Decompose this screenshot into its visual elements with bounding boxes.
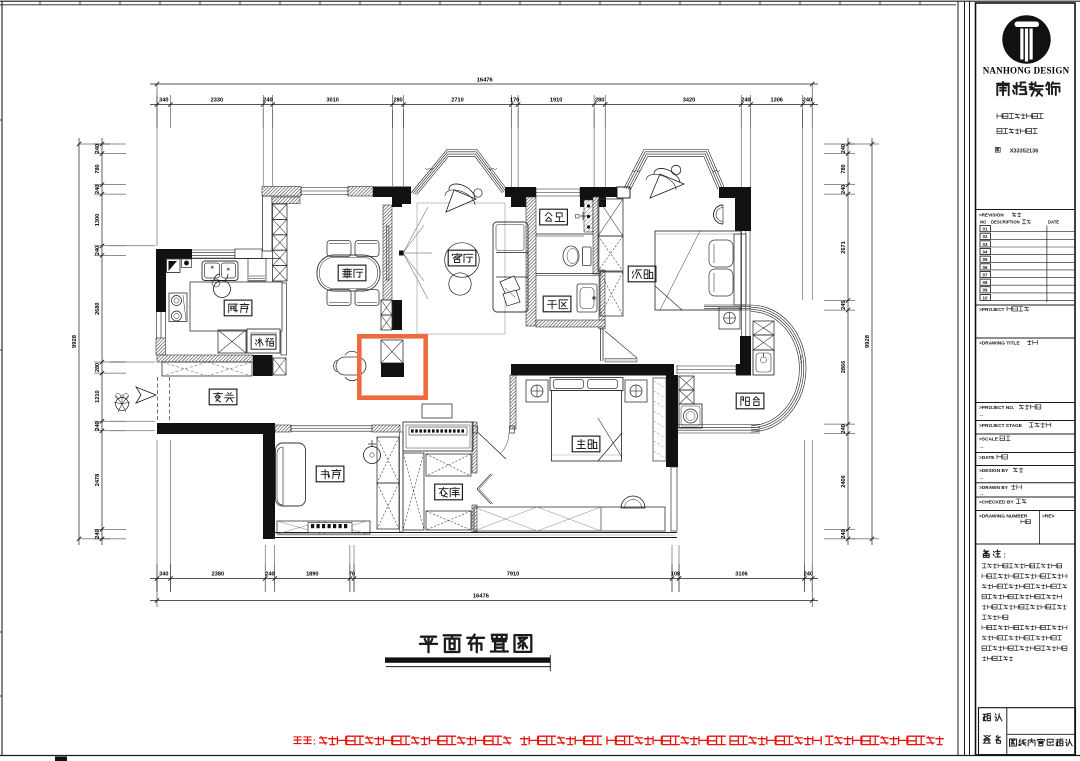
- svg-text:>DRAWING TITLE: >DRAWING TITLE: [979, 341, 1020, 347]
- svg-text:240: 240: [841, 185, 847, 194]
- svg-text:X33352136: X33352136: [1010, 149, 1039, 155]
- svg-text:--: --: [980, 445, 984, 451]
- svg-text:DESCRIPTION: DESCRIPTION: [991, 220, 1020, 225]
- svg-text:2680: 2680: [95, 302, 101, 314]
- svg-text:2406: 2406: [841, 475, 847, 487]
- svg-text:108: 108: [671, 572, 680, 578]
- svg-text:16476: 16476: [477, 78, 494, 84]
- svg-text:1890: 1890: [306, 572, 318, 578]
- svg-text:07: 07: [983, 272, 988, 277]
- svg-text:240: 240: [95, 529, 101, 538]
- svg-text:780: 780: [841, 164, 847, 173]
- svg-text:>CHECKED BY: >CHECKED BY: [979, 500, 1014, 506]
- svg-text:02: 02: [983, 234, 988, 239]
- svg-text:>DESIGN BY: >DESIGN BY: [979, 468, 1009, 474]
- svg-text:01: 01: [983, 227, 988, 232]
- svg-text:280: 280: [595, 98, 604, 104]
- svg-text:05: 05: [983, 257, 988, 262]
- svg-text:>REVISION: >REVISION: [979, 213, 1004, 218]
- svg-text:3106: 3106: [735, 572, 747, 578]
- svg-text:16476: 16476: [473, 594, 490, 600]
- svg-text:240: 240: [263, 98, 272, 104]
- svg-text:240: 240: [803, 98, 812, 104]
- svg-text:240: 240: [265, 572, 274, 578]
- svg-text:06: 06: [983, 265, 988, 270]
- svg-text:240: 240: [841, 144, 847, 153]
- svg-text:03: 03: [983, 242, 988, 247]
- svg-text:2380: 2380: [212, 572, 224, 578]
- svg-text:240: 240: [804, 572, 813, 578]
- svg-text:340: 340: [159, 572, 168, 578]
- svg-text:>PROJECT NO.: >PROJECT NO.: [979, 405, 1014, 411]
- svg-text:2671: 2671: [841, 241, 847, 253]
- svg-text:1306: 1306: [770, 98, 782, 104]
- svg-text:170: 170: [510, 98, 519, 104]
- svg-text:--: --: [980, 476, 984, 482]
- svg-text:240: 240: [841, 424, 847, 433]
- svg-text:>PROJECT STAGE: >PROJECT STAGE: [979, 423, 1023, 429]
- svg-text:240: 240: [95, 185, 101, 194]
- svg-text:9928: 9928: [865, 334, 871, 348]
- svg-text:7910: 7910: [507, 572, 519, 578]
- svg-text:2866: 2866: [841, 361, 847, 373]
- svg-text:280: 280: [393, 98, 402, 104]
- svg-text::: :: [1004, 553, 1006, 560]
- svg-text:>REV: >REV: [1042, 514, 1055, 520]
- svg-text:DATE: DATE: [1048, 220, 1059, 225]
- svg-text:NANHONG DESIGN: NANHONG DESIGN: [983, 66, 1070, 76]
- svg-text:04: 04: [983, 249, 988, 254]
- svg-text:2330: 2330: [211, 98, 223, 104]
- svg-text:3010: 3010: [326, 98, 338, 104]
- svg-text:240: 240: [741, 98, 750, 104]
- svg-text:2478: 2478: [95, 474, 101, 486]
- svg-text::: :: [313, 737, 316, 747]
- svg-text:240: 240: [95, 144, 101, 153]
- svg-text:08: 08: [983, 280, 988, 285]
- svg-text:09: 09: [983, 288, 988, 293]
- svg-text:240: 240: [95, 421, 101, 430]
- svg-text:780: 780: [95, 164, 101, 173]
- svg-text:1300: 1300: [95, 214, 101, 226]
- svg-text:340: 340: [159, 98, 168, 104]
- svg-text:3420: 3420: [683, 98, 695, 104]
- svg-text:245: 245: [841, 301, 847, 310]
- svg-text:>PROJECT: >PROJECT: [979, 307, 1005, 313]
- svg-text:>DRAWN BY: >DRAWN BY: [979, 485, 1009, 491]
- svg-text:10: 10: [983, 295, 988, 300]
- svg-text:280: 280: [95, 363, 101, 372]
- svg-text:>DATE: >DATE: [979, 455, 995, 461]
- svg-text:240: 240: [841, 529, 847, 538]
- svg-text:2710: 2710: [451, 98, 463, 104]
- svg-text:1210: 1210: [95, 390, 101, 402]
- svg-text:>DRAWING NUMBER: >DRAWING NUMBER: [979, 514, 1028, 520]
- svg-text:240: 240: [95, 246, 101, 255]
- svg-text:>SCALE: >SCALE: [979, 437, 999, 443]
- svg-text:1910: 1910: [550, 98, 562, 104]
- svg-text:--: --: [980, 413, 984, 419]
- svg-text:9928: 9928: [72, 334, 78, 348]
- svg-text:NO: NO: [980, 220, 987, 225]
